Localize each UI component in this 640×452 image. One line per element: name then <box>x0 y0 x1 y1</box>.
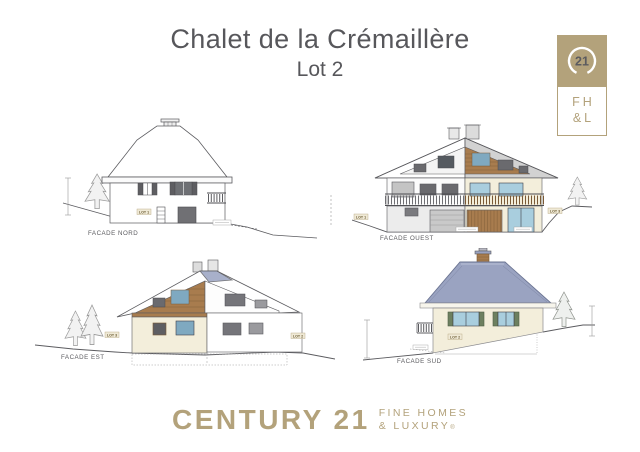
est-chimneys <box>193 260 218 272</box>
nord-dimension-box <box>213 220 231 225</box>
sud-lot-label: LOT 2 <box>450 335 460 339</box>
sheet-title: Chalet de la Crémaillère <box>0 24 640 55</box>
pine-tree-icon <box>81 305 103 345</box>
sud-roof <box>420 262 556 308</box>
nord-caption: FACADE NORD <box>88 230 138 237</box>
century21-tagline: FINE HOMES & LUXURY® <box>379 407 468 432</box>
facade-ouest-elevation: LOT 1 LOT 3 FACADE OUEST <box>352 120 592 250</box>
century21-seal-icon: 21 <box>557 35 607 86</box>
ouest-mid-floor <box>387 178 542 206</box>
pine-tree-icon <box>65 311 86 346</box>
century21-wordmark: CENTURY 21 <box>172 404 370 436</box>
pine-tree-icon <box>553 292 575 327</box>
tagline-line1: FINE HOMES <box>379 407 468 419</box>
nord-lot-badge: LOT 1 <box>137 209 151 215</box>
ouest-chimneys <box>447 125 481 139</box>
sheet-subtitle: Lot 2 <box>0 58 640 82</box>
ouest-caption: FACADE OUEST <box>380 235 434 242</box>
tagline-line2: & LUXURY <box>379 420 451 432</box>
seal-number: 21 <box>575 54 589 68</box>
century21-footer-logo: CENTURY 21 FINE HOMES & LUXURY® <box>0 404 640 436</box>
facade-nord-elevation: LOT 1 FACADE NORD <box>55 112 335 247</box>
monogram-line1: FH <box>569 95 595 111</box>
facade-sud-elevation: LOT 2 FACADE SUD <box>355 248 600 378</box>
sud-balcony <box>417 323 433 333</box>
pine-tree-icon <box>568 177 587 205</box>
nord-lot-label: LOT 1 <box>139 210 149 214</box>
plan-sheet: Chalet de la Crémaillère Lot 2 21 FH &L <box>0 0 640 452</box>
c21-seal-graphic: 21 <box>564 42 600 80</box>
sheet-title-block: Chalet de la Crémaillère Lot 2 <box>0 24 640 82</box>
sud-chimney <box>475 248 491 263</box>
sud-lot-badge: LOT 2 <box>448 334 462 340</box>
sud-caption: FACADE SUD <box>397 358 442 365</box>
ouest-lot-label-right: LOT 3 <box>550 209 560 213</box>
est-caption: FACADE EST <box>61 354 105 361</box>
facade-est-elevation: LOT 3 LOT 2 FACADE EST <box>35 253 335 378</box>
est-lot-label-left: LOT 3 <box>107 333 117 337</box>
registered-mark: ® <box>450 425 457 431</box>
sud-windows <box>448 312 519 326</box>
sud-dimension-box <box>413 345 428 350</box>
nord-roof <box>102 126 232 183</box>
est-lot-label-right: LOT 2 <box>293 334 303 338</box>
ouest-lot-label-left: LOT 1 <box>356 215 366 219</box>
est-mid-floor <box>132 313 302 353</box>
